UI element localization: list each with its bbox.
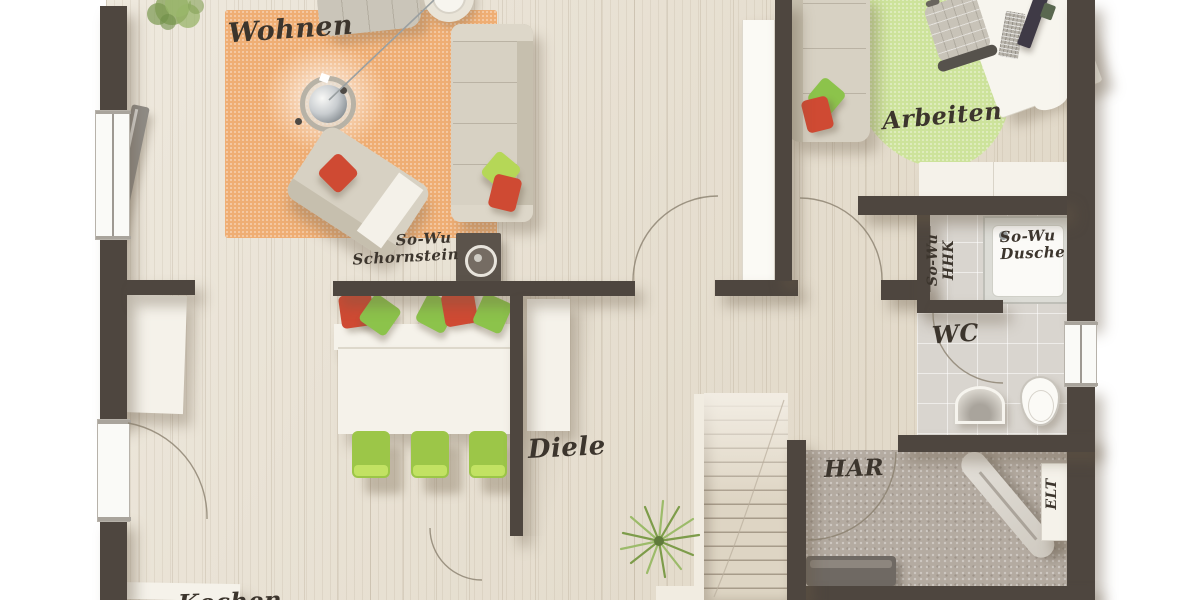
room-label-har: HAR — [824, 455, 885, 484]
door-swing-living — [633, 196, 718, 281]
annotation-schornstein: So-Wu Schornstein — [351, 229, 453, 269]
door-swing-kitchen — [430, 528, 482, 580]
corner-plant — [147, 0, 204, 30]
annotation-elt: ELT — [1044, 474, 1060, 514]
room-label-kochen: Kochen — [178, 586, 283, 600]
annotation-dusche: So-Wu Dusche — [999, 227, 1065, 264]
room-label-wc: WC — [931, 318, 980, 349]
annotation-dusche-line2: Dusche — [1000, 244, 1066, 264]
floor-plan-canvas: Wohnen So-Wu Schornstein Arbeiten So-Wu … — [0, 0, 1200, 600]
room-label-diele: Diele — [527, 432, 606, 466]
door-swing-entrance — [128, 423, 207, 519]
annotation-hhk-line2: HHK — [941, 225, 957, 295]
annotation-hhk: So-Wu HHK — [925, 225, 969, 295]
stair-plant — [621, 501, 699, 577]
annotation-hhk-line1: So-Wu — [925, 225, 941, 295]
door-swing-office — [800, 198, 882, 280]
plan-linework — [0, 0, 1200, 600]
stair-walk-line — [714, 400, 784, 597]
